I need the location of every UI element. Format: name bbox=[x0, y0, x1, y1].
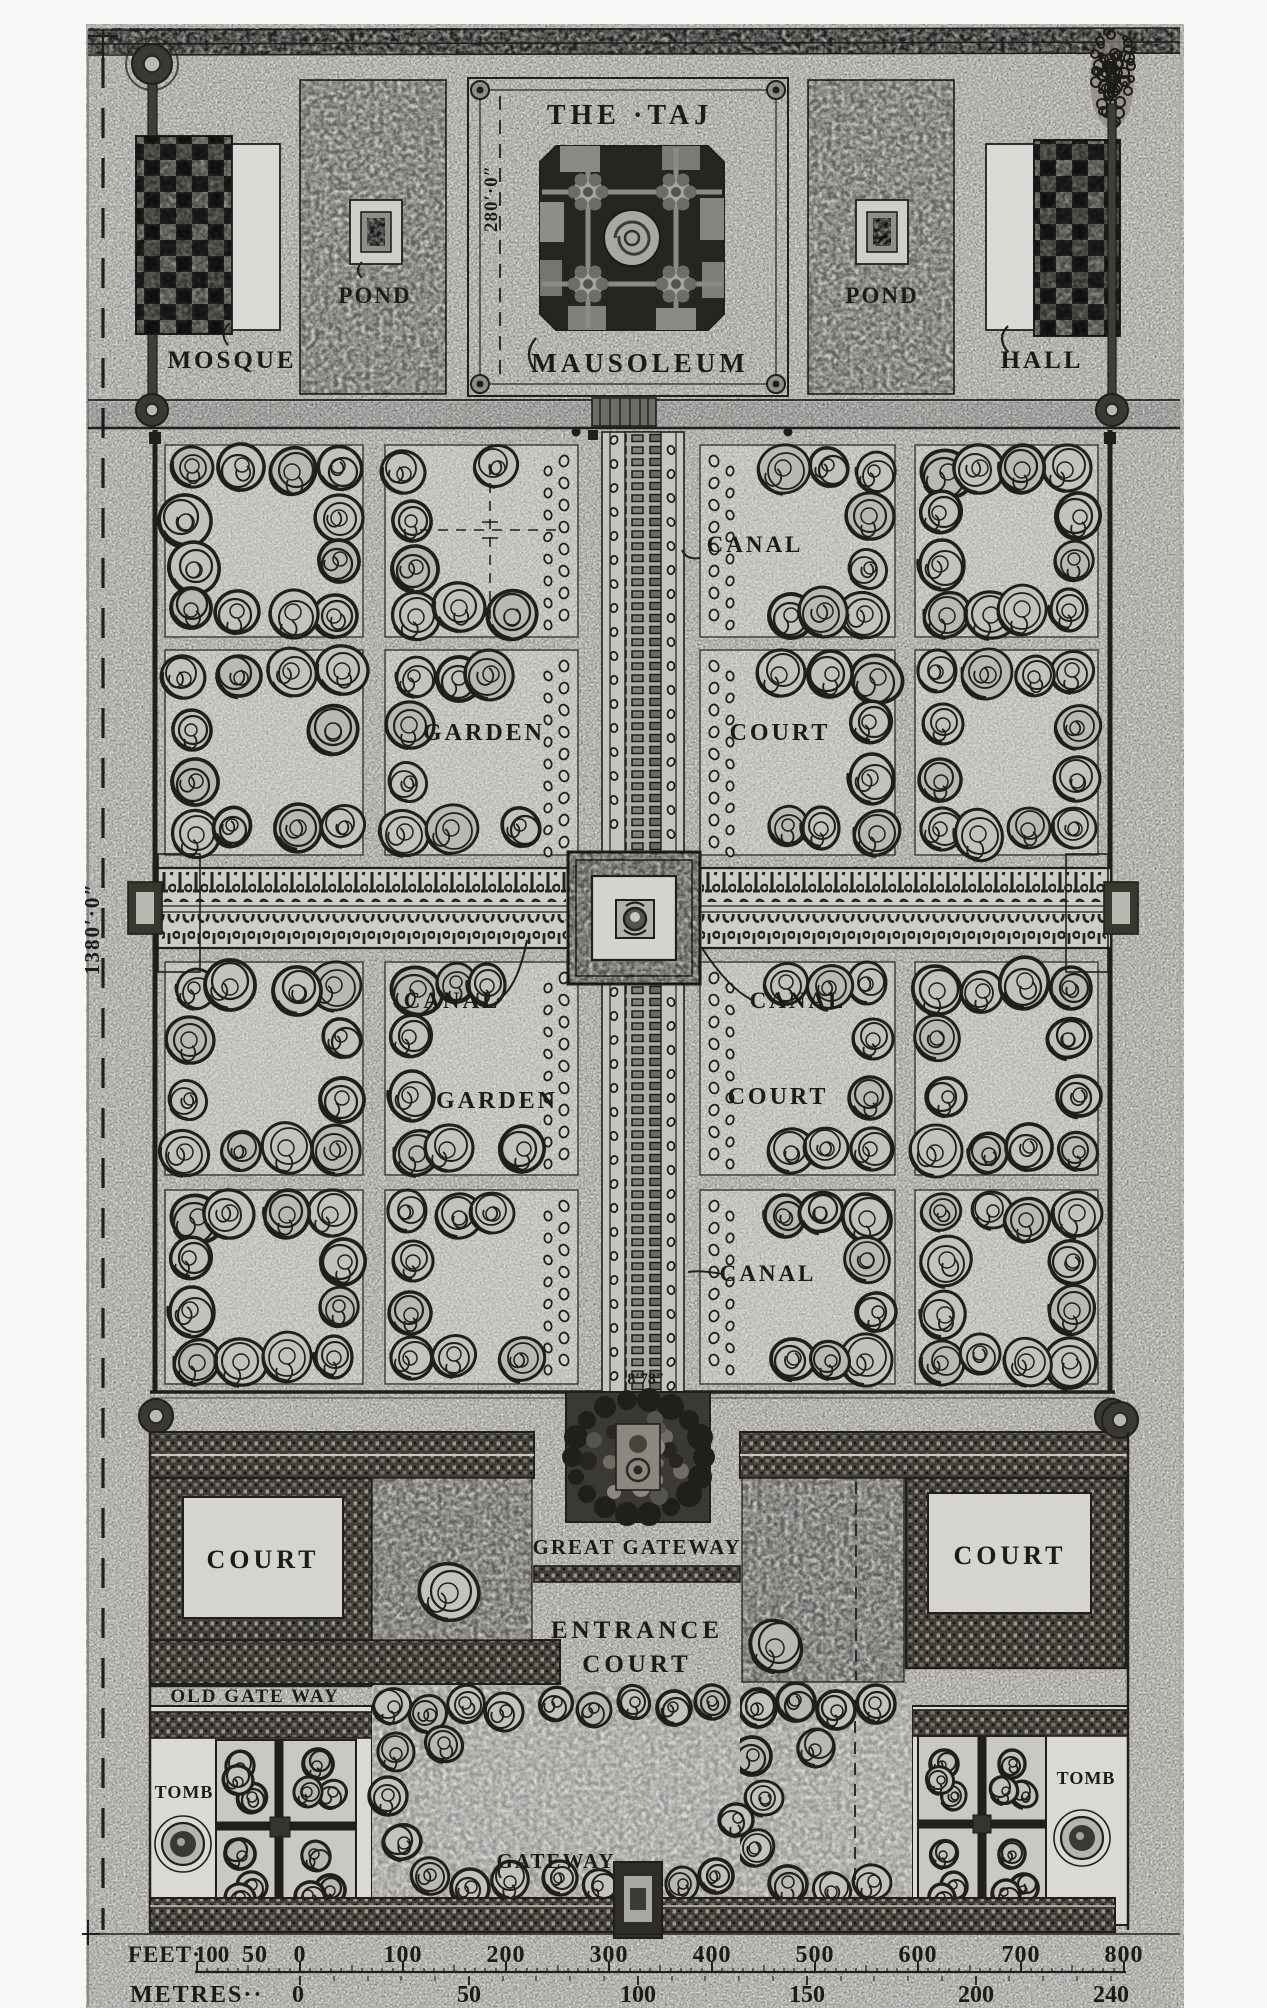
svg-text:GATEWAY: GATEWAY bbox=[496, 1849, 615, 1873]
svg-text:FEET·: FEET· bbox=[128, 1942, 201, 1967]
svg-text:MAUSOLEUM: MAUSOLEUM bbox=[531, 348, 749, 378]
svg-text:POND: POND bbox=[338, 283, 411, 308]
svg-text:GARDEN: GARDEN bbox=[436, 1088, 558, 1114]
svg-text:200: 200 bbox=[958, 1982, 994, 2008]
svg-text:OLD GATE WAY: OLD GATE WAY bbox=[170, 1686, 339, 1707]
svg-text:CANAL: CANAL bbox=[720, 1261, 817, 1286]
svg-text:CANAL: CANAL bbox=[707, 532, 804, 557]
svg-text:METRES··: METRES·· bbox=[130, 1982, 263, 2008]
svg-text:8′78″: 8′78″ bbox=[627, 1371, 664, 1388]
svg-text:POND: POND bbox=[845, 283, 918, 308]
svg-text:COURT: COURT bbox=[730, 720, 831, 746]
svg-text:CANAL: CANAL bbox=[404, 988, 501, 1013]
svg-text:COURT: COURT bbox=[582, 1651, 691, 1678]
svg-text:GARDEN: GARDEN bbox=[423, 720, 545, 746]
svg-text:ENTRANCE: ENTRANCE bbox=[551, 1617, 723, 1644]
svg-text:TOMB: TOMB bbox=[155, 1782, 214, 1802]
svg-text:100: 100 bbox=[195, 1942, 230, 1967]
svg-text:0: 0 bbox=[292, 1982, 304, 2008]
svg-text:100: 100 bbox=[620, 1982, 656, 2008]
svg-text:GREAT GATEWAY: GREAT GATEWAY bbox=[532, 1535, 741, 1559]
svg-text:TOMB: TOMB bbox=[1057, 1768, 1116, 1788]
svg-text:280′·0″: 280′·0″ bbox=[481, 165, 502, 232]
svg-text:1380′·0″: 1380′·0″ bbox=[80, 882, 104, 975]
svg-text:COURT: COURT bbox=[728, 1084, 829, 1110]
svg-text:50: 50 bbox=[457, 1982, 481, 2008]
svg-text:COURT: COURT bbox=[954, 1541, 1067, 1570]
svg-text:HALL: HALL bbox=[1001, 347, 1084, 374]
svg-text:MOSQUE: MOSQUE bbox=[167, 347, 296, 374]
svg-text:CANAL: CANAL bbox=[750, 988, 847, 1013]
svg-text:50: 50 bbox=[242, 1942, 268, 1968]
svg-text:240: 240 bbox=[1093, 1982, 1129, 2008]
svg-text:THE ·TAJ: THE ·TAJ bbox=[547, 100, 713, 131]
svg-text:COURT: COURT bbox=[207, 1545, 320, 1574]
svg-text:150: 150 bbox=[789, 1982, 825, 2008]
